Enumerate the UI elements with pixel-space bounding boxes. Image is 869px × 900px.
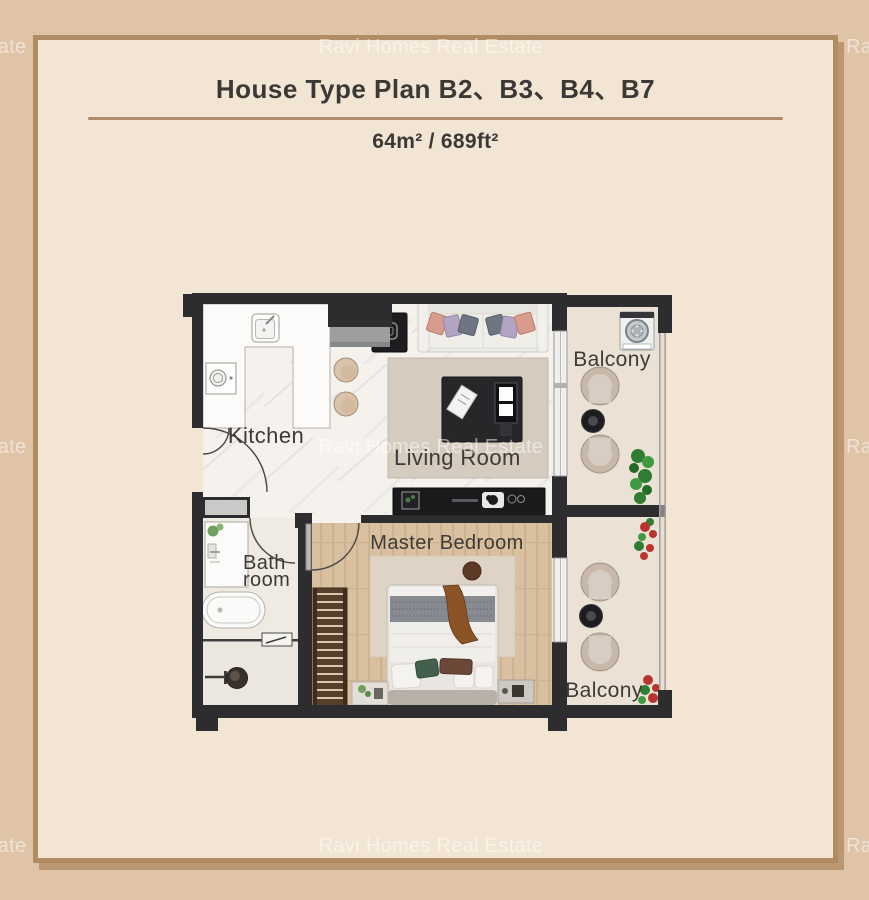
duvet (390, 622, 495, 662)
pillow-brown (440, 658, 473, 674)
watermark-text: Ravi Homes Real Estate (846, 835, 869, 858)
stove (206, 363, 236, 394)
nightstand-right (498, 680, 534, 703)
wall-stub (196, 718, 218, 731)
wall (567, 505, 666, 517)
bed (387, 585, 498, 707)
floor-plan: Kitchen Living Room Master Bedroom Bath … (190, 290, 674, 734)
wall (361, 515, 553, 523)
coffee-table (442, 377, 522, 442)
wall (192, 705, 672, 718)
watermark-text: Ravi Homes Real Estate (0, 835, 26, 858)
plant-box-icon (402, 492, 419, 509)
room-label-bathroom: Bath room (243, 555, 323, 589)
watermark-text: Ravi Homes Real Estate (0, 436, 26, 459)
vanity (205, 522, 248, 587)
room-label-kitchen: Kitchen (206, 423, 326, 449)
tv-console (393, 488, 545, 515)
wall-niche (205, 500, 247, 515)
window (554, 558, 567, 642)
plan-area: 64m² / 689ft² (38, 130, 833, 154)
wall (192, 492, 203, 718)
wall-stub (548, 718, 567, 731)
armchair (581, 563, 619, 601)
armchair (581, 633, 619, 671)
wall (552, 476, 567, 558)
sofa (418, 298, 548, 352)
pillow (475, 666, 493, 688)
nightstand-left (352, 682, 388, 705)
balcony-table (580, 605, 603, 628)
room-label-balcony-bottom: Balcony (544, 679, 664, 703)
balcony-table (582, 410, 605, 433)
wall (390, 293, 555, 304)
shower-floor (203, 642, 298, 705)
armchair (581, 367, 619, 405)
pouf (463, 562, 481, 580)
wall (555, 295, 672, 307)
plan-title: House Type Plan B2、B3、B4、B7 (38, 76, 833, 102)
title-divider (88, 117, 783, 120)
room-label-balcony-top: Balcony (552, 348, 672, 372)
watermark-text: Ravi Homes Real Estate (0, 36, 26, 59)
bathroom-label-line2: room (243, 569, 290, 591)
watermark-text: Ravi Homes Real Estate (846, 436, 869, 459)
kitchen-gray-counter (330, 327, 390, 347)
pillow-green (415, 659, 439, 679)
headboard (388, 690, 497, 705)
towel-shelf (262, 633, 292, 646)
wall (552, 293, 567, 331)
balcony-railing (659, 333, 666, 690)
wall (658, 295, 672, 333)
watermark-text: Ravi Homes Real Estate (846, 36, 869, 59)
wall (328, 293, 392, 327)
bathtub (202, 592, 265, 628)
kitchen-sink (252, 314, 279, 342)
page: House Type Plan B2、B3、B4、B7 64m² / 689ft… (0, 0, 869, 900)
armchair (581, 435, 619, 473)
room-label-master-bedroom: Master Bedroom (347, 532, 547, 555)
wardrobe-rack (313, 588, 347, 708)
room-label-living-room: Living Room (394, 445, 514, 471)
wall (192, 293, 203, 428)
washing-machine (620, 312, 654, 350)
